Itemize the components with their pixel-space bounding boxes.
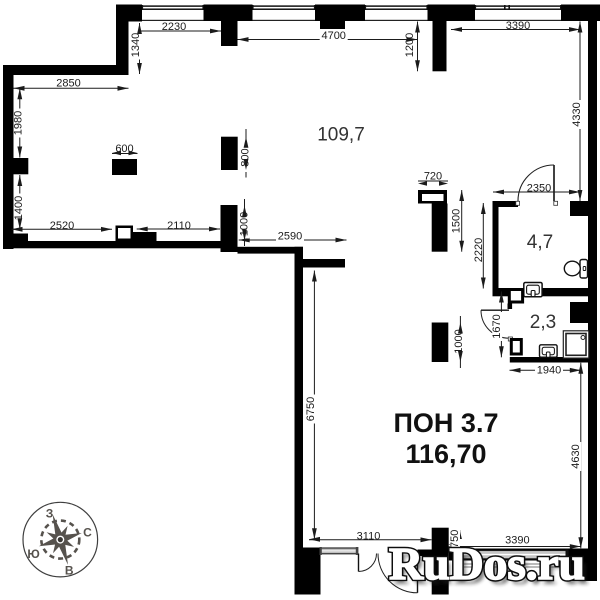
svg-text:Ю: Ю bbox=[27, 547, 39, 561]
svg-text:1940: 1940 bbox=[537, 364, 561, 376]
svg-text:720: 720 bbox=[424, 171, 442, 183]
svg-text:4330: 4330 bbox=[571, 102, 583, 126]
svg-text:2110: 2110 bbox=[167, 220, 191, 232]
svg-text:В: В bbox=[65, 564, 74, 578]
svg-text:1200: 1200 bbox=[404, 33, 416, 57]
svg-text:2350: 2350 bbox=[527, 182, 551, 194]
svg-text:2,3: 2,3 bbox=[530, 312, 556, 333]
svg-text:1400: 1400 bbox=[13, 196, 25, 220]
svg-text:2230: 2230 bbox=[162, 21, 186, 33]
svg-text:1000: 1000 bbox=[238, 212, 250, 236]
svg-text:3110: 3110 bbox=[357, 530, 381, 542]
svg-text:1000: 1000 bbox=[453, 329, 465, 353]
svg-text:ПОН 3.7: ПОН 3.7 bbox=[394, 408, 499, 438]
svg-text:С: С bbox=[83, 526, 92, 540]
svg-text:6750: 6750 bbox=[305, 397, 317, 421]
svg-text:109,7: 109,7 bbox=[317, 125, 365, 146]
svg-text:RuDos.ru: RuDos.ru bbox=[389, 538, 585, 589]
svg-text:2590: 2590 bbox=[278, 231, 302, 243]
svg-text:1980: 1980 bbox=[13, 111, 25, 135]
svg-text:1670: 1670 bbox=[491, 314, 503, 338]
svg-text:2220: 2220 bbox=[473, 238, 485, 262]
svg-text:4,7: 4,7 bbox=[527, 232, 553, 253]
svg-text:2850: 2850 bbox=[56, 78, 80, 90]
svg-text:800: 800 bbox=[240, 148, 252, 166]
svg-text:З: З bbox=[46, 507, 54, 521]
svg-text:3390: 3390 bbox=[506, 20, 530, 32]
svg-text:4700: 4700 bbox=[321, 30, 345, 42]
svg-text:4630: 4630 bbox=[570, 444, 582, 468]
svg-text:116,70: 116,70 bbox=[405, 439, 486, 469]
svg-text:1500: 1500 bbox=[450, 209, 462, 233]
svg-text:1340: 1340 bbox=[130, 33, 142, 57]
svg-text:2520: 2520 bbox=[50, 220, 74, 232]
